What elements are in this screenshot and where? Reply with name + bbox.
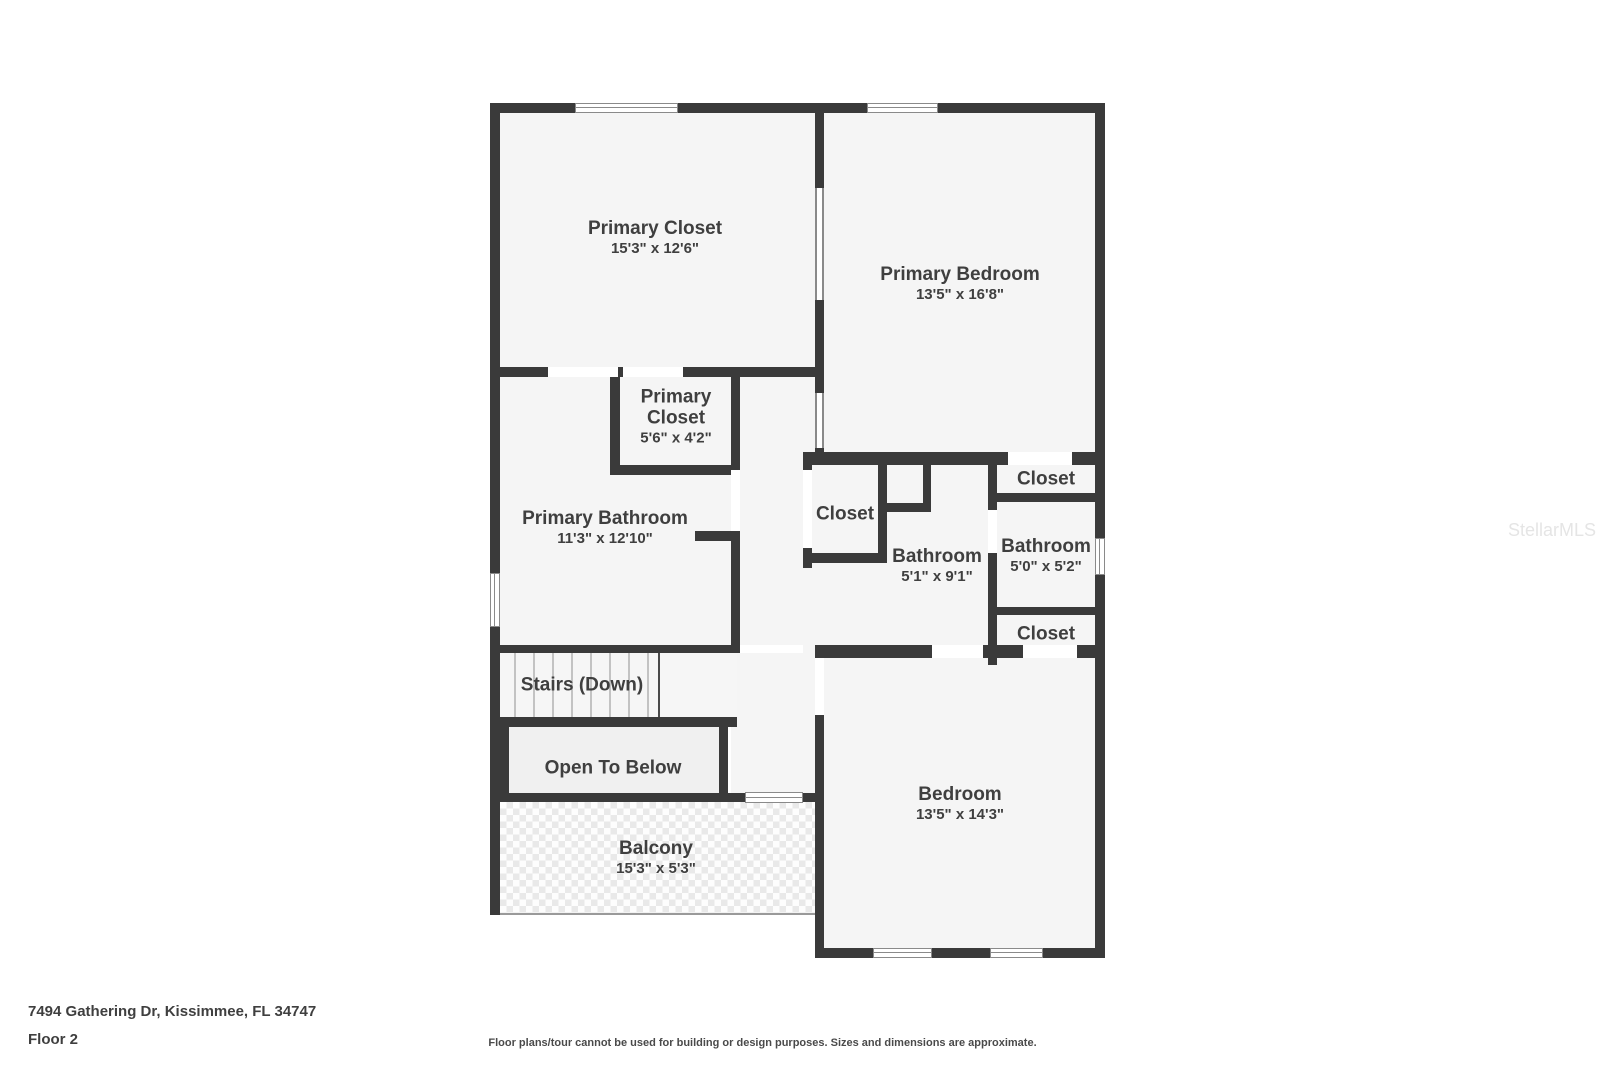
window — [873, 948, 932, 958]
wall — [490, 103, 500, 915]
floorplan-canvas: Primary Closet 15'3" x 12'6" Primary Bed… — [0, 0, 1600, 1066]
door-opening — [548, 367, 618, 377]
room-label-primary-bathroom: Primary Bathroom 11'3" x 12'10" — [522, 508, 688, 548]
room-label-primary-closet-small: Primary Closet 5'6" x 4'2" — [617, 387, 735, 448]
watermark: StellarMLS — [1508, 520, 1596, 541]
wall — [728, 793, 745, 802]
room-label-open-to-below: Open To Below — [545, 758, 682, 779]
door-opening — [988, 510, 997, 553]
wall — [610, 465, 740, 475]
wall — [695, 531, 740, 541]
door-opening — [731, 470, 740, 531]
wall-opening — [815, 188, 824, 300]
room-label-bathroom-middle: Bathroom 5'1" x 9'1" — [892, 546, 982, 586]
wall — [731, 531, 740, 653]
door-opening — [1008, 452, 1072, 465]
wall — [997, 493, 1105, 502]
window — [490, 573, 500, 627]
room-label-stairs: Stairs (Down) — [521, 675, 643, 696]
room-label-bathroom-right: Bathroom 5'0" x 5'2" — [1001, 536, 1091, 576]
property-address: 7494 Gathering Dr, Kissimmee, FL 34747 — [28, 1003, 316, 1020]
wall — [1095, 103, 1105, 958]
door-opening — [932, 645, 983, 658]
window — [990, 948, 1043, 958]
wall — [815, 948, 1105, 958]
wall — [803, 553, 885, 563]
room-label-closet-bottom-right: Closet — [1017, 624, 1075, 645]
door-opening — [1023, 645, 1077, 658]
room-label-balcony: Balcony 15'3" x 5'3" — [616, 838, 696, 878]
wall — [923, 452, 931, 512]
room-label-primary-closet-large: Primary Closet 15'3" x 12'6" — [588, 218, 722, 258]
wall — [490, 645, 740, 653]
room-label-bedroom: Bedroom 13'5" x 14'3" — [916, 784, 1004, 824]
window — [1095, 538, 1105, 575]
door-opening — [803, 470, 812, 548]
door-opening — [623, 367, 683, 377]
stair-edge-line — [658, 653, 660, 717]
disclaimer-text: Floor plans/tour cannot be used for buil… — [0, 1037, 1525, 1049]
floor-area — [731, 653, 815, 793]
wall — [803, 793, 815, 802]
window — [575, 103, 678, 113]
sliding-door — [745, 792, 803, 803]
door-opening — [815, 658, 824, 715]
room-label-closet-middle: Closet — [816, 504, 874, 525]
wall-opening — [815, 393, 824, 448]
window — [867, 103, 938, 113]
wall — [988, 452, 997, 665]
room-label-primary-bedroom: Primary Bedroom 13'5" x 16'8" — [880, 264, 1039, 304]
room-label-closet-top-right: Closet — [1017, 469, 1075, 490]
wall — [997, 607, 1105, 615]
wall — [490, 717, 737, 727]
